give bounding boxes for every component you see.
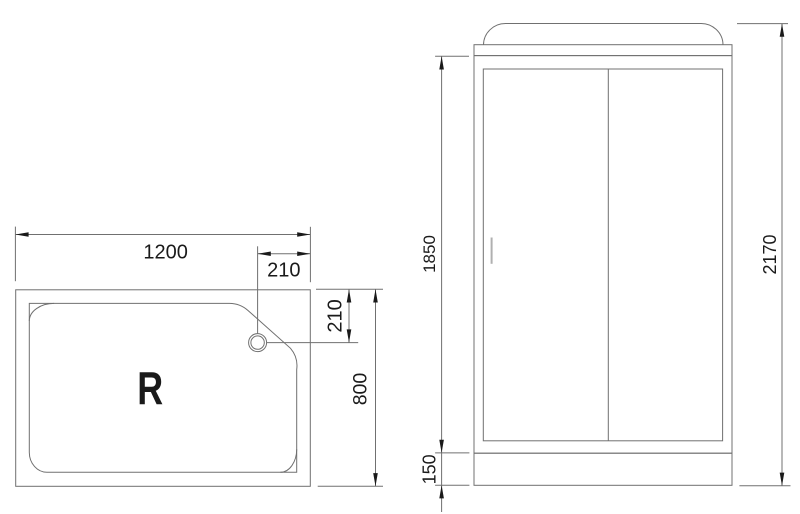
svg-text:210: 210 [267,259,300,281]
svg-text:800: 800 [350,373,372,406]
svg-text:150: 150 [420,454,440,484]
svg-text:1850: 1850 [420,235,439,273]
svg-text:R: R [137,363,163,414]
svg-text:210: 210 [324,299,346,332]
svg-text:1200: 1200 [143,242,188,264]
svg-text:2170: 2170 [760,234,780,274]
